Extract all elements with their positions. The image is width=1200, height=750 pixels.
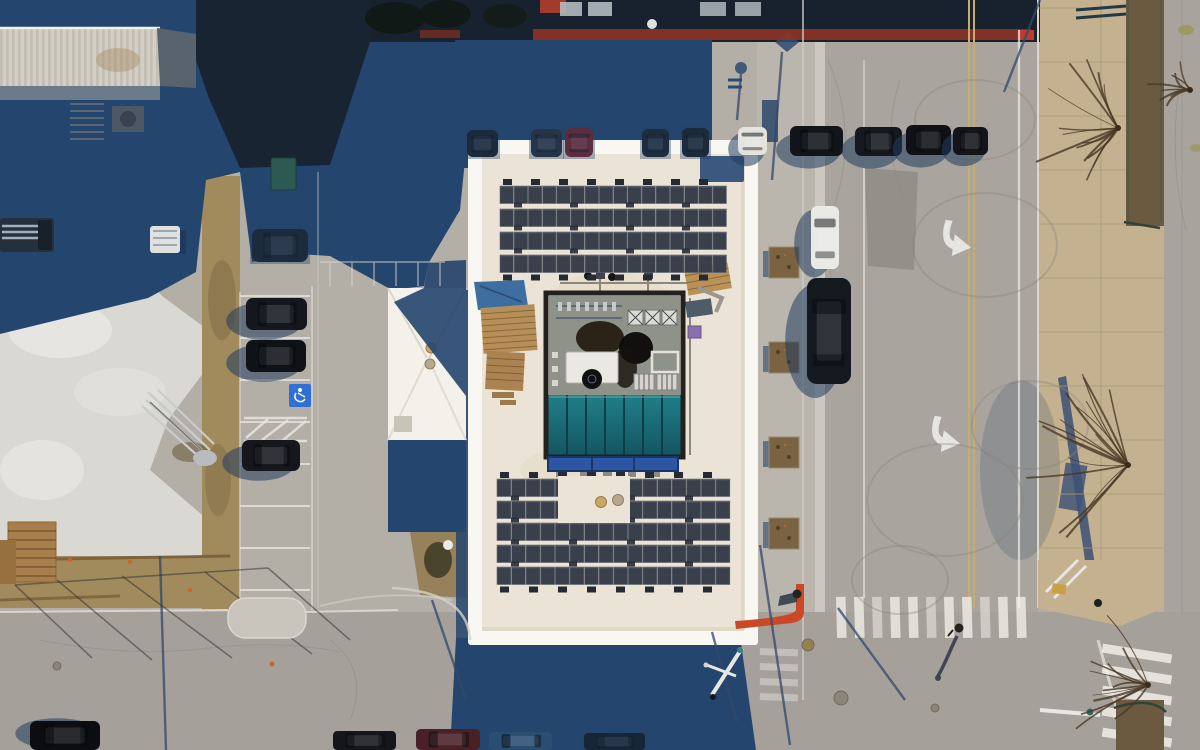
manhole-cover	[802, 639, 814, 651]
solar-panel	[514, 255, 527, 273]
solar-panel	[570, 523, 584, 541]
asphalt-repair-patch	[865, 168, 918, 270]
planter-plant	[776, 255, 780, 259]
solar-panel	[557, 209, 570, 227]
solar-panel	[557, 255, 570, 273]
car-glass	[346, 733, 355, 747]
solar-panel	[699, 255, 712, 273]
planter-plant	[787, 536, 791, 540]
ballast-block	[671, 179, 680, 185]
ballast-block	[703, 472, 712, 478]
ballast-block	[626, 249, 634, 254]
solar-panel	[514, 209, 527, 227]
solar-panel	[628, 209, 641, 227]
parked-car-red	[563, 126, 595, 159]
planter-shadow	[763, 522, 769, 548]
ballast-block	[699, 179, 708, 185]
hvac-unit-row	[628, 310, 677, 325]
car-glass	[814, 354, 845, 366]
car-glass	[978, 131, 982, 151]
car-glass	[289, 345, 296, 367]
solar-panel	[614, 255, 627, 273]
solar-panel	[571, 209, 584, 227]
car-glass	[284, 445, 290, 467]
solar-panel	[512, 567, 526, 585]
car-glass	[915, 129, 921, 152]
solar-panel	[643, 479, 657, 497]
solar-panel	[643, 523, 657, 541]
car-glass	[258, 344, 266, 368]
shade-overlay	[563, 126, 595, 159]
ballast-block	[529, 587, 538, 593]
ballast-block	[685, 496, 693, 501]
solar-panel	[628, 501, 642, 519]
ballast-block	[587, 275, 596, 281]
solar-panel	[497, 479, 511, 497]
car-glass	[44, 724, 54, 746]
solar-panel	[628, 255, 641, 273]
solar-panel	[599, 255, 612, 273]
ballast-block	[503, 179, 512, 185]
solar-panel	[599, 567, 613, 585]
solar-panel	[658, 501, 672, 519]
solar-panel	[543, 232, 556, 250]
equipment-band	[548, 457, 678, 471]
pallet-stack	[485, 351, 525, 391]
wood-pallet	[0, 522, 56, 584]
ballast-block	[674, 587, 683, 593]
tree-trunk	[1187, 87, 1193, 93]
ballast-block	[627, 562, 635, 567]
ballast-block	[671, 275, 680, 281]
equipment-post	[552, 352, 558, 358]
car-glass	[812, 299, 845, 314]
car-glass	[742, 147, 762, 150]
hvac-fan	[120, 111, 136, 127]
shade-overlay	[465, 128, 500, 159]
building-apron	[0, 86, 160, 100]
parked-car	[640, 127, 671, 159]
planter-plant	[784, 254, 786, 256]
dumpster	[271, 158, 296, 190]
ballast-block	[682, 203, 690, 208]
planter	[763, 437, 799, 468]
parked-car	[529, 127, 564, 159]
solar-panel	[642, 209, 655, 227]
crosswalk-stripe	[998, 597, 1009, 638]
solar-panel	[614, 209, 627, 227]
solar-panel	[685, 209, 698, 227]
ballast-block	[570, 249, 578, 254]
solar-panel	[656, 232, 669, 250]
car-glass	[290, 303, 297, 325]
solar-panel	[614, 567, 628, 585]
solar-panel	[713, 209, 726, 227]
crosswalk-stripe	[962, 597, 973, 638]
solar-panel	[614, 186, 627, 204]
solar-panel	[713, 232, 726, 250]
solar-panel	[670, 186, 683, 204]
ballast-block	[570, 203, 578, 208]
car-glass	[429, 732, 438, 748]
car-glass	[502, 734, 511, 748]
ballast-block	[570, 226, 578, 231]
roof-drain	[608, 273, 616, 281]
ballast-block	[685, 562, 693, 567]
planter-shadow	[763, 441, 769, 467]
shade-overlay	[250, 227, 310, 264]
ballast-block	[645, 587, 654, 593]
solar-panel	[687, 545, 701, 563]
solar-panel	[687, 523, 701, 541]
solar-panel	[500, 209, 513, 227]
work-van	[150, 226, 186, 254]
solar-panel	[514, 232, 527, 250]
crosswalk-stripe	[944, 597, 955, 638]
parked-car-maroon	[416, 729, 480, 750]
planter	[763, 518, 799, 549]
solar-array-bottom	[497, 472, 731, 593]
crosswalk-stripe-worn	[760, 678, 798, 686]
curb-island	[228, 598, 306, 638]
solar-panel	[497, 523, 511, 541]
solar-panel	[716, 479, 730, 497]
planting-bed	[1116, 700, 1164, 750]
shade-overlay	[582, 731, 647, 750]
solar-panel	[585, 209, 598, 227]
solar-panel	[628, 479, 642, 497]
parked-car	[250, 227, 310, 264]
planter-soil	[769, 437, 799, 468]
planter-plant	[784, 525, 786, 527]
solar-panel	[585, 232, 598, 250]
solar-panel	[571, 255, 584, 273]
solar-panel	[528, 186, 541, 204]
parked-car	[582, 731, 647, 750]
solar-panel	[643, 501, 657, 519]
pallet-stack	[480, 304, 537, 354]
solar-panel	[555, 545, 569, 563]
ballast-block	[500, 472, 509, 478]
ballast-block	[529, 472, 538, 478]
equipment-post	[552, 366, 558, 372]
red-roofline	[420, 30, 460, 38]
ballast-block	[514, 249, 522, 254]
solar-panel	[528, 255, 541, 273]
loose-plank	[492, 392, 514, 398]
planter	[763, 247, 799, 278]
solar-panel	[585, 545, 599, 563]
roof-vent	[425, 359, 435, 369]
ballast-block	[511, 496, 519, 501]
shade-overlay	[529, 127, 564, 159]
ballast-block	[645, 472, 654, 478]
shade-overlay	[680, 126, 711, 159]
car-glass	[80, 725, 88, 745]
solar-panel	[599, 186, 612, 204]
pedestrian-body	[955, 624, 964, 633]
solar-panel	[614, 232, 627, 250]
main-building-roof	[468, 140, 758, 645]
car-glass	[815, 251, 835, 258]
car-glass	[864, 130, 871, 152]
tree-canopy-dark	[483, 4, 527, 28]
ballast-block	[703, 587, 712, 593]
solar-panel	[543, 186, 556, 204]
accessible-parking-marking	[289, 384, 311, 407]
tree-canopy-dark	[419, 0, 471, 28]
ballast-block	[559, 275, 568, 281]
solar-panel	[699, 232, 712, 250]
solar-panel	[555, 523, 569, 541]
solar-panel	[701, 545, 715, 563]
crosswalk-stripe	[890, 597, 901, 638]
manhole-cover	[53, 662, 61, 670]
solar-panel	[497, 545, 511, 563]
ballast-block	[500, 587, 509, 593]
ballast-block	[558, 587, 567, 593]
solar-panel	[500, 255, 513, 273]
ballast-block	[587, 587, 596, 593]
crosswalk-stripe-worn	[760, 648, 798, 656]
solar-panel	[685, 232, 698, 250]
solar-panel	[672, 567, 686, 585]
solar-panel	[599, 545, 613, 563]
solar-panel	[570, 567, 584, 585]
solar-panel	[701, 501, 715, 519]
car-glass	[378, 734, 385, 747]
solar-panel	[571, 232, 584, 250]
concrete-bright-patch	[0, 440, 84, 500]
rooftop-ac-box	[394, 416, 412, 432]
solar-panel	[628, 523, 642, 541]
parked-car	[465, 128, 500, 159]
solar-panel	[526, 567, 540, 585]
utility-trailer	[0, 218, 54, 252]
street-light-shadow	[735, 62, 747, 74]
solar-panel	[658, 479, 672, 497]
solar-panel	[512, 545, 526, 563]
solar-panel	[541, 479, 555, 497]
roof-fan	[582, 369, 602, 389]
solar-panel	[570, 545, 584, 563]
ballast-block	[616, 587, 625, 593]
solar-panel	[685, 255, 698, 273]
ballast-block	[674, 472, 683, 478]
solar-panel	[716, 523, 730, 541]
ballast-block	[682, 249, 690, 254]
ballast-block	[685, 518, 693, 523]
solar-panel	[512, 479, 526, 497]
solar-panel	[528, 209, 541, 227]
mechanical-courtyard	[546, 293, 683, 477]
solar-panel	[599, 209, 612, 227]
parked-car-blue	[489, 732, 552, 750]
solar-panel	[543, 209, 556, 227]
solar-panel	[526, 479, 540, 497]
solar-panel	[628, 232, 641, 250]
manhole-cover	[931, 704, 939, 712]
ballast-block	[503, 275, 512, 281]
solar-panel	[585, 255, 598, 273]
solar-panel	[500, 186, 513, 204]
solar-panel	[512, 501, 526, 519]
solar-panel	[497, 501, 511, 519]
ballast-block	[587, 179, 596, 185]
ballast-block	[682, 226, 690, 231]
solar-panel	[701, 479, 715, 497]
solar-panel	[713, 255, 726, 273]
building-window	[588, 2, 612, 16]
solar-panel	[628, 186, 641, 204]
exhaust-stain	[576, 321, 624, 355]
crosswalk-stripe	[872, 597, 883, 638]
solar-panel	[599, 523, 613, 541]
solar-panel	[541, 523, 555, 541]
roof-vent	[613, 495, 624, 506]
planter-soil	[769, 518, 799, 549]
building-window	[700, 2, 726, 16]
parked-car	[680, 126, 711, 159]
tree-canopy-dark	[365, 2, 425, 34]
solar-panel	[687, 567, 701, 585]
manhole-cover	[834, 691, 848, 705]
ballast-block	[615, 275, 624, 281]
tree-trunk	[1115, 125, 1121, 131]
tactile-ramp	[1051, 583, 1066, 595]
solar-panel	[614, 545, 628, 563]
junction-box	[596, 272, 605, 279]
roof-vent	[596, 497, 607, 508]
ballast-block	[511, 518, 519, 523]
solar-panel	[543, 255, 556, 273]
ballast-block	[627, 540, 635, 545]
satellite-dish	[647, 19, 657, 29]
car-glass	[254, 444, 262, 468]
solar-panel	[643, 567, 657, 585]
solar-panel	[701, 523, 715, 541]
ballast-block	[643, 179, 652, 185]
car-glass	[258, 302, 267, 326]
car-glass	[828, 131, 834, 152]
dirt-strip	[202, 176, 240, 610]
loose-plank	[500, 400, 516, 405]
solar-panel	[685, 186, 698, 204]
ballast-block	[511, 540, 519, 545]
solar-panel	[642, 232, 655, 250]
solar-panel	[701, 567, 715, 585]
crosswalk-stripe	[980, 597, 991, 638]
ballast-block	[514, 226, 522, 231]
solar-panel	[512, 523, 526, 541]
purple-box	[688, 326, 701, 338]
aerial-photo	[0, 0, 1200, 750]
ballast-block	[569, 540, 577, 545]
solar-panel	[713, 186, 726, 204]
solar-panel	[716, 545, 730, 563]
crosswalk-stripe	[1016, 597, 1027, 638]
solar-panel	[643, 545, 657, 563]
solar-panel	[656, 209, 669, 227]
solar-panel	[514, 186, 527, 204]
solar-panel	[585, 186, 598, 204]
planter-plant	[787, 265, 791, 269]
pedestrian-shadow	[935, 675, 941, 681]
solar-panel	[541, 501, 555, 519]
solar-panel	[571, 186, 584, 204]
solar-panel	[528, 232, 541, 250]
concrete-bright-patch	[74, 368, 166, 416]
ballast-block	[531, 275, 540, 281]
ballast-block	[626, 203, 634, 208]
car-glass	[741, 133, 763, 137]
solar-panel	[526, 545, 540, 563]
ballast-block	[511, 562, 519, 567]
solar-panel	[642, 186, 655, 204]
solar-panel	[658, 523, 672, 541]
car-glass	[814, 219, 835, 228]
solar-panel	[716, 501, 730, 519]
solar-panel	[699, 186, 712, 204]
annex-south-shadow	[388, 440, 466, 532]
solar-panel	[658, 545, 672, 563]
red-roofline	[533, 29, 1031, 40]
planter-plant	[776, 526, 780, 530]
solar-panel	[585, 523, 599, 541]
equipment-post	[552, 380, 558, 386]
solar-panel	[585, 567, 599, 585]
ballast-block	[569, 562, 577, 567]
tree-trunk	[1125, 462, 1131, 468]
solar-panel	[670, 209, 683, 227]
solar-panel	[716, 567, 730, 585]
ballast-block	[626, 226, 634, 231]
solar-panel	[526, 501, 540, 519]
solar-panel	[672, 479, 686, 497]
planting-bed	[1126, 0, 1164, 226]
solar-panel	[557, 232, 570, 250]
ballast-block	[615, 179, 624, 185]
solar-panel	[687, 479, 701, 497]
solar-panel	[656, 255, 669, 273]
planter-plant	[787, 455, 791, 459]
solar-panel	[500, 232, 513, 250]
ballast-block	[643, 275, 652, 281]
solar-panel	[497, 567, 511, 585]
car-glass	[534, 735, 541, 748]
roof-gable	[157, 28, 196, 88]
ballast-block	[559, 179, 568, 185]
solar-panel	[614, 523, 628, 541]
roof-stain	[96, 48, 140, 72]
white-tank	[443, 540, 453, 550]
solar-panel	[628, 545, 642, 563]
tree-trunk	[1145, 682, 1151, 688]
ballast-block	[514, 203, 522, 208]
solar-panel	[557, 186, 570, 204]
parked-car	[333, 731, 396, 750]
solar-panel	[670, 255, 683, 273]
planter-soil	[769, 247, 799, 278]
solar-panel	[541, 545, 555, 563]
solar-panel	[672, 501, 686, 519]
aerial-photo-canvas	[0, 0, 1200, 750]
car-glass	[960, 130, 965, 151]
building-window	[560, 2, 582, 16]
solar-panel	[658, 567, 672, 585]
car-glass	[801, 130, 808, 153]
ballast-block	[531, 179, 540, 185]
